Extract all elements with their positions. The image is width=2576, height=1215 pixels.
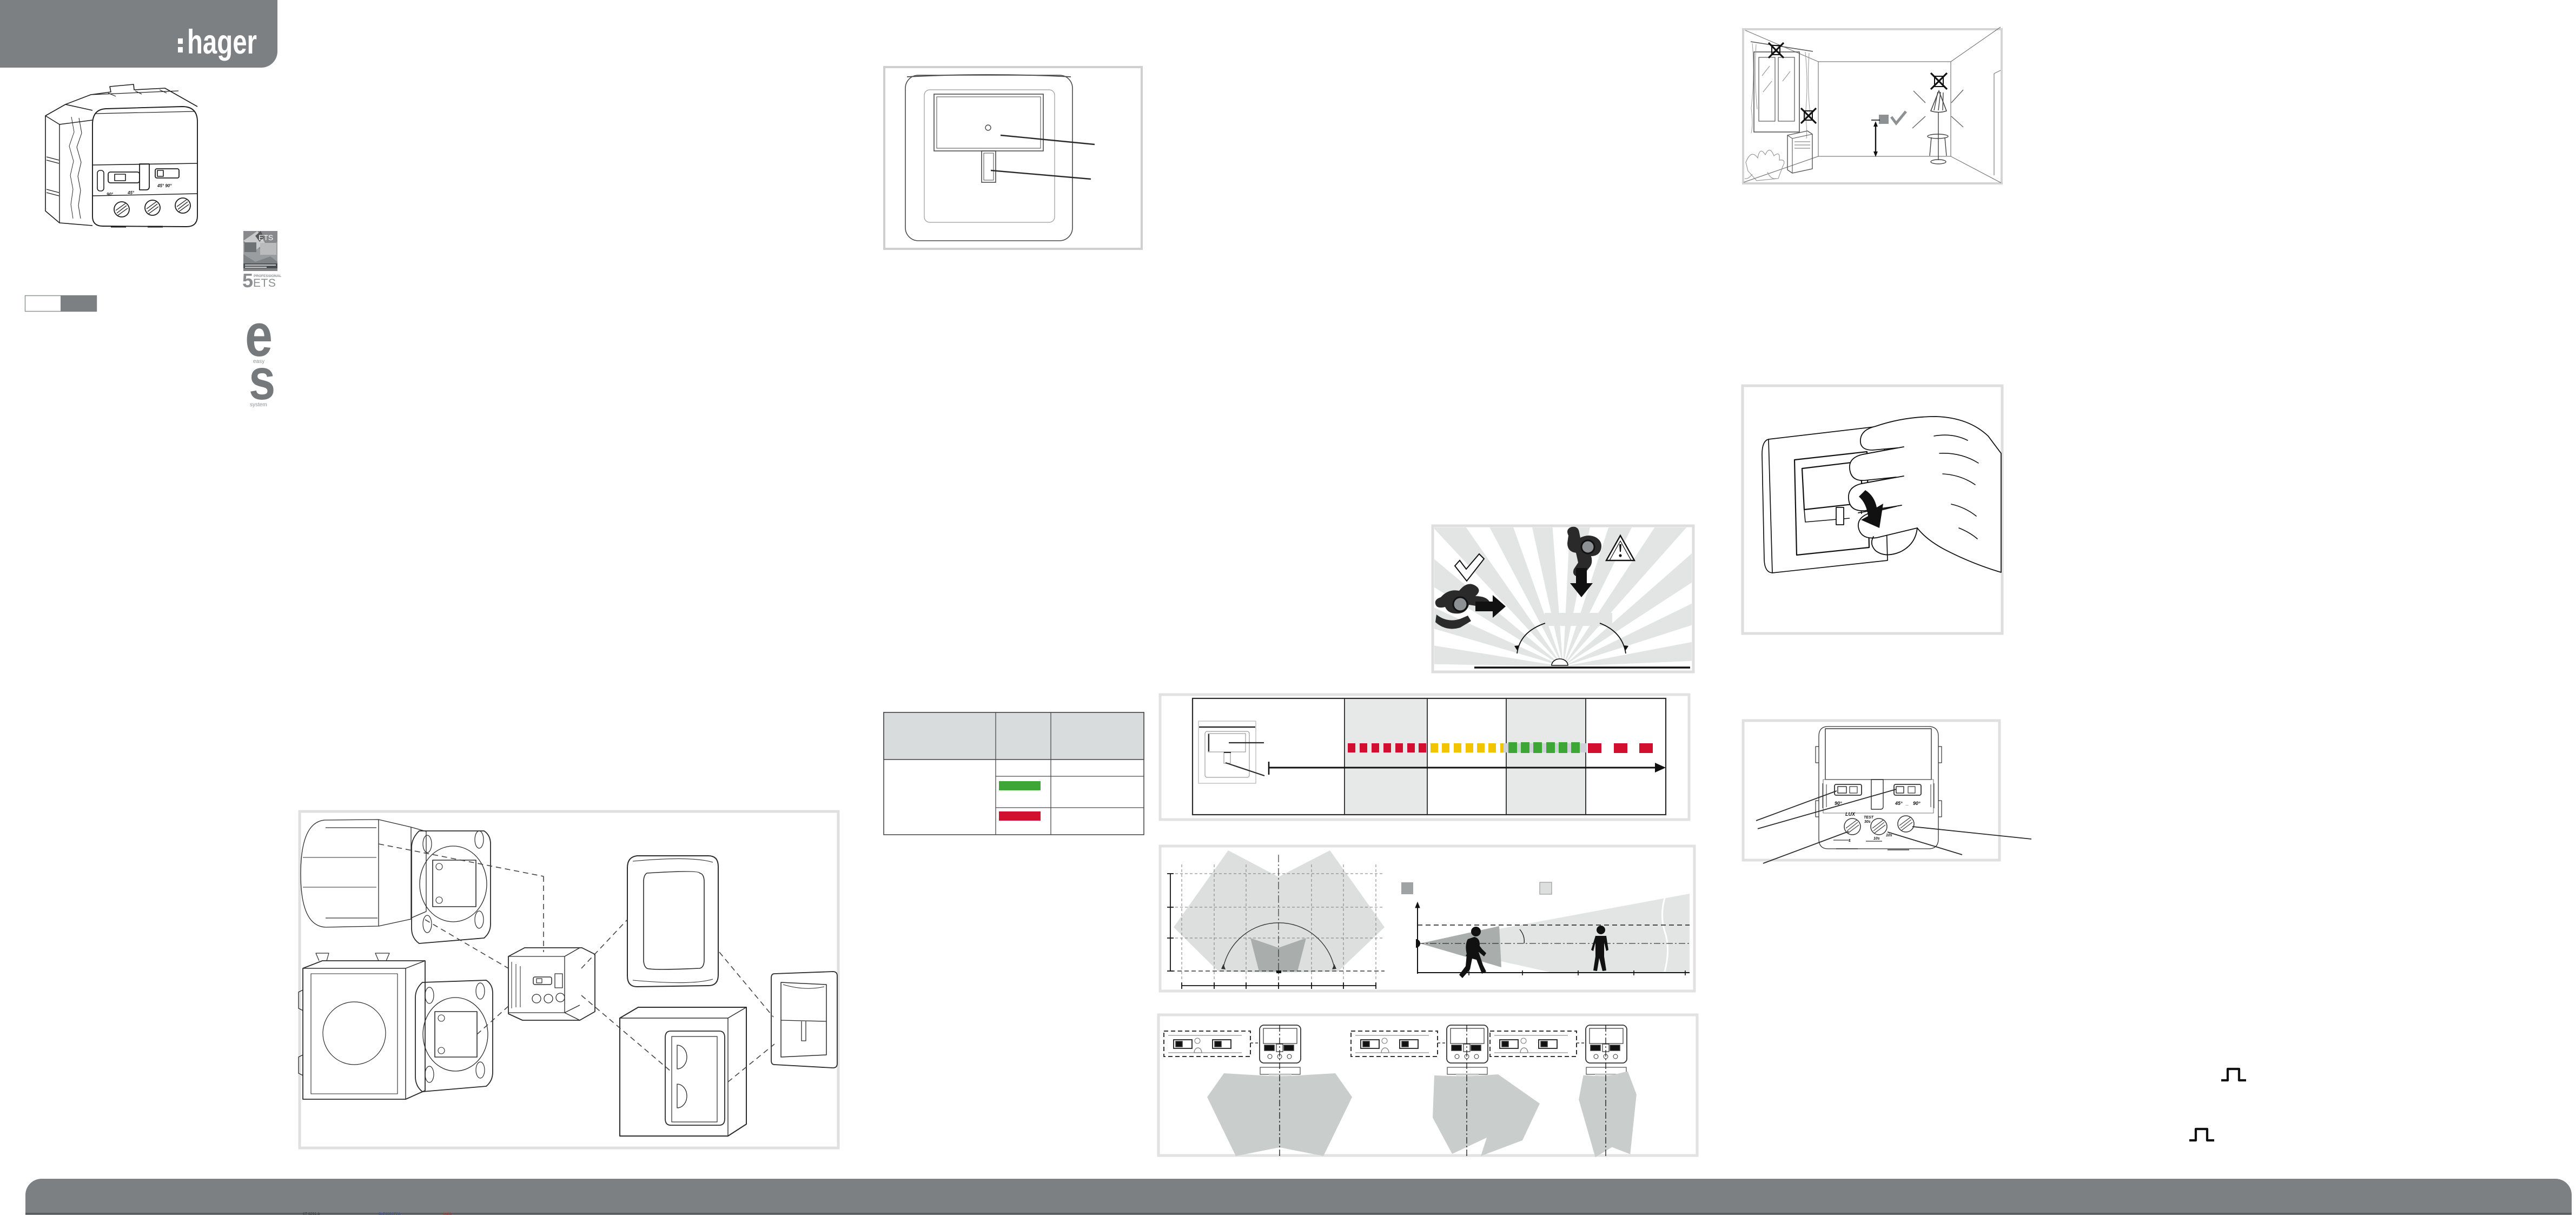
svg-text:6LE002077A: 6LE002077A (379, 1212, 401, 1215)
svg-text:LUX: LUX (1845, 811, 1856, 817)
svg-text:system: system (250, 402, 267, 408)
svg-text:10s: 10s (1873, 837, 1880, 841)
svg-text:45°: 45° (1895, 801, 1903, 806)
svg-text:6T 8291.b: 6T 8291.b (303, 1212, 320, 1215)
svg-text:45°: 45° (127, 190, 135, 195)
svg-text:_: _ (1905, 801, 1909, 806)
svg-text:45° 90°: 45° 90° (157, 183, 172, 188)
svg-text:10s: 10s (1886, 834, 1892, 837)
svg-text:hager: hager (187, 23, 257, 61)
svg-text:5: 5 (242, 269, 253, 292)
svg-text:TEST: TEST (1864, 816, 1874, 820)
svg-text:ETS: ETS (253, 277, 276, 289)
svg-text:30s: 30s (1864, 820, 1871, 824)
svg-text:1: 1 (1849, 839, 1851, 843)
svg-text:90°: 90° (1913, 801, 1921, 806)
svg-text:ETS: ETS (259, 233, 273, 242)
svg-text:90°: 90° (107, 192, 114, 197)
svg-text:ind.b: ind.b (443, 1212, 452, 1215)
